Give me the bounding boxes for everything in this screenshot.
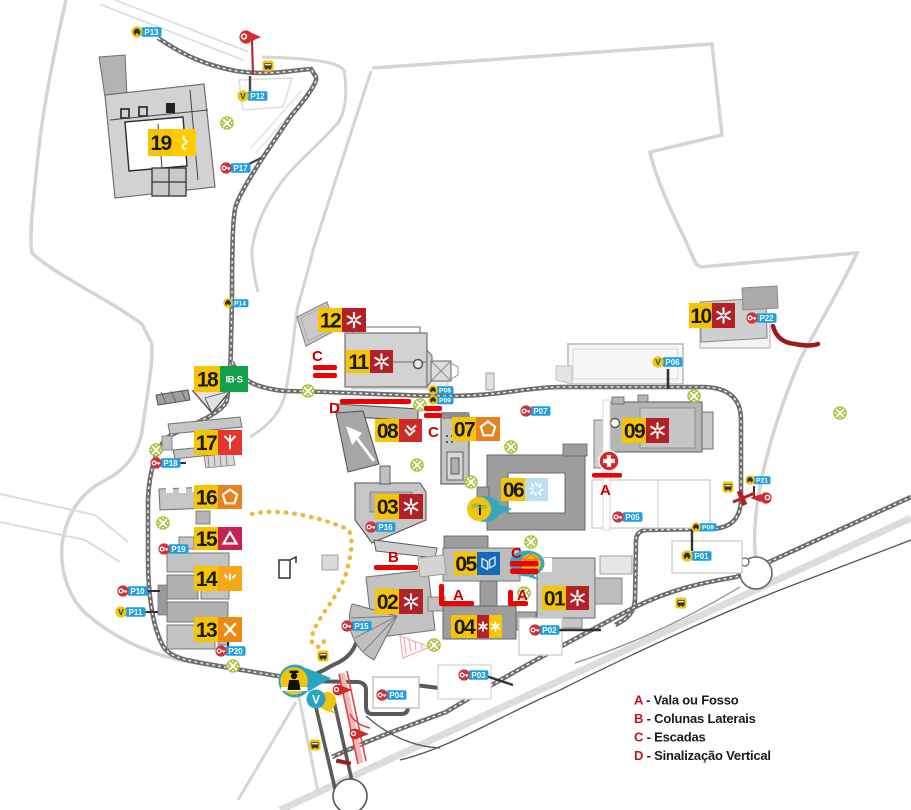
svg-text:05: 05 (455, 553, 477, 576)
svg-text:P22: P22 (759, 314, 774, 323)
svg-text:P09: P09 (439, 398, 451, 405)
svg-text:P09: P09 (702, 525, 714, 532)
svg-text:D: D (329, 400, 340, 417)
svg-text:i: i (478, 502, 482, 518)
svg-text:06: 06 (503, 479, 524, 502)
svg-text:07: 07 (454, 419, 475, 442)
svg-text:P17: P17 (233, 164, 248, 173)
svg-text:P19: P19 (171, 545, 186, 554)
svg-text:14: 14 (196, 568, 218, 591)
svg-text:P14: P14 (234, 301, 246, 308)
svg-text:C - Escadas: C - Escadas (634, 730, 706, 745)
svg-text:C: C (428, 424, 439, 441)
svg-text:16: 16 (196, 487, 217, 510)
svg-text:D - Sinalização Vertical: D - Sinalização Vertical (634, 748, 771, 763)
svg-text:09: 09 (624, 420, 645, 443)
svg-text:12: 12 (320, 310, 341, 333)
svg-text:P20: P20 (228, 647, 243, 656)
svg-text:P15: P15 (354, 622, 369, 631)
svg-text:IB·S: IB·S (226, 375, 243, 386)
svg-text:P10: P10 (130, 587, 145, 596)
svg-text:02: 02 (377, 591, 398, 614)
svg-text:A: A (600, 482, 611, 499)
svg-text:P04: P04 (389, 691, 404, 700)
svg-text:P13: P13 (144, 28, 159, 37)
svg-text:P21: P21 (756, 478, 768, 485)
svg-text:C: C (312, 348, 323, 365)
svg-text:18: 18 (197, 369, 219, 392)
svg-text:P05: P05 (625, 513, 640, 522)
svg-text:A: A (453, 587, 464, 604)
svg-text:V: V (312, 693, 320, 707)
svg-text:01: 01 (544, 588, 566, 611)
svg-text:10: 10 (690, 305, 711, 328)
svg-text:P01: P01 (694, 552, 709, 561)
svg-text:P06: P06 (665, 358, 680, 367)
svg-text:P12: P12 (250, 92, 265, 101)
svg-text:17: 17 (196, 432, 217, 455)
svg-text:B - Colunas Laterais: B - Colunas Laterais (634, 711, 756, 726)
svg-text:P07: P07 (533, 407, 548, 416)
svg-text:P02: P02 (542, 626, 557, 635)
svg-text:P03: P03 (471, 671, 486, 680)
svg-text:P18: P18 (163, 459, 178, 468)
svg-text:C: C (511, 545, 522, 562)
svg-text:P11: P11 (129, 608, 143, 617)
svg-text:04: 04 (454, 616, 476, 639)
svg-text:15: 15 (196, 528, 218, 551)
svg-text:P16: P16 (378, 523, 393, 532)
svg-text:03: 03 (377, 496, 398, 519)
svg-text:B: B (388, 549, 399, 566)
svg-text:11: 11 (348, 351, 369, 374)
svg-text:08: 08 (377, 420, 399, 443)
svg-text:P08: P08 (439, 388, 451, 395)
svg-text:13: 13 (196, 619, 217, 642)
svg-text:A - Vala ou Fosso: A - Vala ou Fosso (634, 693, 739, 708)
svg-text:A: A (517, 587, 528, 604)
svg-text:19: 19 (150, 132, 171, 155)
